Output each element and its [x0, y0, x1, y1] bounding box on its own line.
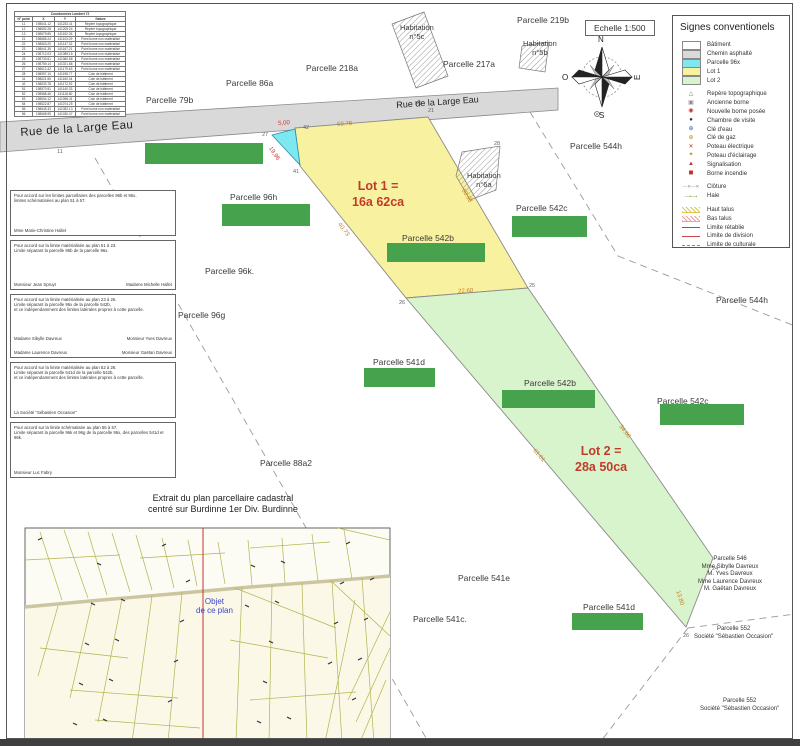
parcelle-218a: Parcelle 218a — [306, 63, 358, 73]
legend-label: Limite de culturale — [707, 242, 756, 248]
restored-limit-line — [682, 227, 700, 228]
coord-cell: 141096.41 — [54, 97, 76, 102]
coord-cell: 141233.41 — [54, 22, 76, 27]
boundary-dashed-544h-b — [618, 256, 795, 326]
coord-cell: 198759.14 — [33, 62, 55, 67]
coord-cell: 141052.13 — [54, 107, 76, 112]
coord-cell: 198712.03 — [33, 52, 55, 57]
legend-label: Lot 1 — [707, 69, 720, 75]
legend-item: Limite rétablie — [681, 223, 785, 232]
coordinate-table: Coordonnées Lambert 72 N° pointXYNature … — [14, 11, 126, 117]
parcelle-217a: Parcelle 217a — [443, 59, 495, 69]
accord-text-line: Limite séparant la parcelle 96k et 96g d… — [14, 430, 172, 440]
legend-item: ✕Poteau électrique — [681, 143, 785, 152]
coord-cell: 198622.87 — [33, 102, 55, 107]
parcelle-219b: Parcelle 219b — [517, 15, 569, 25]
legend-item: Bâtiment — [681, 41, 785, 50]
vertex-number: 25 — [529, 283, 535, 289]
accord-text-line: limites schématisées au plan 51 à 57. — [14, 198, 172, 203]
parcelle-541e: Parcelle 541e — [458, 573, 510, 583]
parcelle-542c-upper: Parcelle 542c — [516, 203, 568, 213]
parcelle-544h-right: Parcelle 544h — [716, 295, 768, 305]
upper-slope-icon — [682, 207, 700, 213]
coord-cell: Point borne non matérialisé — [76, 37, 126, 42]
coord-cell: Point borne non matérialisé — [76, 42, 126, 47]
signature-name: Monsieur Luc Fabry — [14, 470, 52, 475]
compass-north-label: N — [598, 35, 604, 44]
objet-plan-label: Objetde ce plan — [196, 597, 233, 615]
redaction-box — [364, 368, 435, 387]
parcelle-544h-upper: Parcelle 544h — [570, 141, 622, 151]
power-pole-icon: ✕ — [681, 144, 701, 151]
old-boundary-stone-icon: ▣ — [681, 100, 701, 107]
legend-label: Nouvelle borne posée — [707, 109, 765, 115]
fence-line-icon: —✕—✕ — [683, 184, 700, 190]
parcelle-542c-right: Parcelle 542c — [657, 396, 709, 406]
coord-col-header: N° point — [15, 17, 33, 22]
fire-hydrant-icon: ◼ — [689, 170, 694, 177]
coord-cell: 198652.28 — [33, 27, 55, 32]
coord-cell: 141205.24 — [54, 27, 76, 32]
vertex-number: 26 — [683, 633, 689, 639]
boundary-dashed-552 — [598, 628, 688, 745]
coord-cell: 198685.24 — [33, 37, 55, 42]
coord-cell: 198588.46 — [33, 92, 55, 97]
coord-cell: Point borne non matérialisé — [76, 62, 126, 67]
parcelle-541d-mid: Parcelle 541d — [373, 357, 425, 367]
redaction-box — [572, 613, 643, 630]
legend-label: Clôture — [707, 184, 726, 190]
signature-name: Mme Marie-Christine Hallet — [14, 228, 66, 233]
signage-icon: ▲ — [688, 161, 694, 168]
lot2-label: Lot 2 =28a 50ca — [575, 443, 627, 475]
building-swatch — [681, 41, 701, 50]
signature-name: La Société "Sébastien Occasion" — [14, 410, 77, 415]
hedge-line-icon: —•—• — [681, 194, 701, 199]
legend-label: Ancienne borne — [707, 100, 749, 106]
coord-cell: Point borne non matérialisé — [76, 52, 126, 57]
legend-item: ▣Ancienne borne — [681, 99, 785, 108]
fence-line-icon: —✕—✕ — [681, 184, 701, 190]
compass-west-label: O — [562, 73, 568, 82]
coord-cell: 141060.58 — [54, 57, 76, 62]
signature-name: Monsieur Yves Davreux — [127, 336, 172, 341]
compass-east-label: E — [633, 75, 642, 80]
legend-item: ◼Borne incendie — [681, 169, 785, 178]
manhole-icon: ● — [689, 117, 693, 124]
coord-cell: 141074.25 — [54, 102, 76, 107]
coord-cell: 141089.15 — [54, 52, 76, 57]
survey-marker-icon: △ — [681, 91, 701, 98]
coord-cell: Point borne non matérialisé — [76, 57, 126, 62]
legend-label: Chambre de visite — [707, 118, 755, 124]
measure-label: 59.78 — [337, 121, 352, 128]
lower-slope-icon — [681, 216, 701, 222]
vertex-number: 28 — [494, 141, 500, 147]
legend-label: Clé d'eau — [707, 127, 732, 133]
new-boundary-stone-icon: ◉ — [688, 108, 693, 115]
redaction-box — [145, 143, 263, 164]
legend-item: ●Chambre de visite — [681, 116, 785, 125]
street-light-icon: ✦ — [688, 152, 693, 159]
signature-name: Madame Michelle Hallet — [126, 282, 172, 287]
cultural-limit-line — [682, 245, 700, 246]
signature-name: Monsieur Gaëtan Davreux — [122, 350, 172, 355]
gas-valve-icon: ⊕ — [681, 135, 701, 142]
coord-cell: 141030.47 — [54, 112, 76, 117]
legend-item: Bas talus — [681, 214, 785, 223]
manhole-icon: ● — [681, 117, 701, 124]
inset-map — [25, 528, 390, 742]
parcelle-96k: Parcelle 96k. — [205, 266, 254, 276]
coord-cell: 198733.61 — [33, 57, 55, 62]
accord-text-line: et ce indépendamment des limites latéral… — [14, 375, 172, 380]
coord-cell: 141021.86 — [54, 62, 76, 67]
coord-cell: 198645.33 — [33, 107, 55, 112]
coord-cell: Point borne non matérialisé — [76, 67, 126, 72]
upper-slope-icon — [681, 207, 701, 213]
legend-label: Poteau d'éclairage — [707, 153, 757, 159]
parcelle-542b-lot2: Parcelle 542b — [524, 378, 576, 388]
signature-name: Madame Laurence Davreux — [14, 350, 67, 355]
building-swatch — [682, 41, 701, 50]
legend-label: Limite de division — [707, 233, 753, 239]
redaction-box — [502, 390, 595, 408]
redaction-box — [512, 216, 587, 237]
habitation-5b: Habitationn°5b — [523, 40, 557, 57]
parcelle-96h: Parcelle 96h — [230, 192, 277, 202]
legend-label: Repère topographique — [707, 91, 767, 97]
measure-label: 5,00 — [278, 120, 290, 127]
legend-label: Limite rétablie — [707, 225, 744, 231]
legend-item: Lot 1 — [681, 67, 785, 76]
vertex-number: 42 — [303, 125, 309, 131]
legend-label: Lot 2 — [707, 78, 720, 84]
parcelle-79b: Parcelle 79b — [146, 95, 193, 105]
parcelle-96g: Parcelle 96g — [178, 310, 225, 320]
coord-cell: 56 — [15, 112, 33, 117]
gas-valve-icon: ⊕ — [688, 135, 693, 142]
parcelle-546-owners: Parcelle 546Mme Sibylle DavreuxM. Yves D… — [698, 556, 762, 594]
coord-cell: 198679.89 — [33, 32, 55, 37]
parcelle-552-owner-1: Parcelle 552Société "Sébastien Occasion" — [694, 626, 773, 641]
legend-item: Limite de division — [681, 232, 785, 241]
coord-cell: 198604.12 — [33, 97, 55, 102]
legend-label: Bas talus — [707, 216, 732, 222]
accord-note: Pour accord sur la limite matérialisée a… — [10, 294, 176, 358]
redaction-box — [387, 243, 485, 262]
legend-item: ✦Poteau d'éclairage — [681, 152, 785, 161]
scan-edge-bar — [0, 739, 800, 746]
legend-label: Poteau électrique — [707, 144, 754, 150]
accord-note: Pour accord sur la limite schématisée au… — [10, 422, 176, 478]
coord-cell: 198612.42 — [33, 67, 55, 72]
vertex-number: 21 — [428, 108, 434, 114]
vertex-number: 41 — [293, 169, 299, 175]
legend-item: ▲Signalisation — [681, 160, 785, 169]
power-pole-icon: ✕ — [688, 144, 693, 151]
restored-limit-line — [681, 227, 701, 228]
legend-label: Haut talus — [707, 207, 734, 213]
road-swatch — [682, 50, 701, 59]
legend-item: △Repère topographique — [681, 90, 785, 99]
accord-note: Pour accord sur la limite matérialisée a… — [10, 240, 176, 290]
accord-note: Pour accord sur la limite matérialisée a… — [10, 362, 176, 418]
old-boundary-stone-icon: ▣ — [688, 100, 694, 107]
parcel96x-swatch — [681, 59, 701, 68]
coord-cell: 198641.35 — [33, 47, 55, 52]
habitation-5c: Habitationn°5c — [400, 24, 434, 41]
parcelle-541d-bottom: Parcelle 541d — [583, 602, 635, 612]
lot1-swatch — [681, 67, 701, 76]
parcel96x-swatch — [682, 59, 701, 68]
coord-cell: 198663.20 — [33, 42, 55, 47]
accord-text-line: et ce indépendamment des limites latéral… — [14, 307, 172, 312]
signage-icon: ▲ — [681, 161, 701, 168]
measure-label: 22.60 — [458, 288, 473, 295]
lower-slope-icon — [682, 216, 700, 222]
water-valve-icon: ⊕ — [688, 126, 693, 133]
parcelle-542b-lot1: Parcelle 542b — [402, 233, 454, 243]
legend-label: Chemin asphalté — [707, 51, 752, 57]
legend-item: ⊕Clé d'eau — [681, 125, 785, 134]
legend-title: Signes conventionels — [680, 22, 785, 33]
redaction-box — [660, 404, 744, 425]
parcelle-541c: Parcelle 541c. — [413, 614, 467, 624]
scale-indicator: Echelle 1:500 — [585, 20, 655, 36]
road-swatch — [681, 50, 701, 59]
parcelle-86a: Parcelle 86a — [226, 78, 273, 88]
new-boundary-stone-icon: ◉ — [681, 108, 701, 115]
extrait-caption: Extrait du plan parcellaire cadastralcen… — [148, 493, 298, 515]
accord-note: Pour accord sur les limites parcellaires… — [10, 190, 176, 236]
lot2-swatch — [682, 76, 701, 85]
coord-cell: 198570.91 — [33, 87, 55, 92]
coord-cell: Point borne non matérialisé — [76, 107, 126, 112]
legend-label: Signalisation — [707, 162, 741, 168]
legend-item: Lot 2 — [681, 76, 785, 85]
coord-cell: 198633.78 — [33, 82, 55, 87]
legend-label: Parcelle 96x — [707, 60, 740, 66]
coord-cell: Point borne non matérialisé — [76, 47, 126, 52]
legend-item: Haut talus — [681, 206, 785, 215]
vertex-number: 26 — [399, 300, 405, 306]
legend-label: Borne incendie — [707, 171, 747, 177]
hedge-line-icon: —•—• — [685, 194, 697, 199]
coord-cell: 198668.95 — [33, 112, 55, 117]
parcelle-88a2: Parcelle 88a2 — [260, 458, 312, 468]
lot2-swatch — [681, 76, 701, 85]
compass-south-label: S — [599, 111, 604, 120]
accord-text-line: Limite séparant la parcelle 96b de la pa… — [14, 248, 172, 253]
division-limit-line — [682, 236, 700, 237]
legend-item: —•—•Haie — [681, 192, 785, 201]
coord-cell: 198597.10 — [33, 72, 55, 77]
legend-label: Clé de gaz — [707, 135, 736, 141]
cadastral-plan-sheet: N S O E 59.785,0019,9640.7360.9322.6061.… — [0, 0, 800, 746]
lot2-area — [406, 288, 713, 627]
signature-name: Madame Sibylle Davreux — [14, 336, 62, 341]
division-limit-line — [681, 236, 701, 237]
legend-label: Bâtiment — [707, 42, 731, 48]
coord-cell: 198621.55 — [33, 77, 55, 82]
lot1-swatch — [682, 67, 701, 76]
legend-item: Chemin asphalté — [681, 50, 785, 59]
legend-item: ⊕Clé de gaz — [681, 134, 785, 143]
legend-item: Parcelle 96x — [681, 59, 785, 68]
legend: Signes conventionels BâtimentChemin asph… — [672, 15, 790, 248]
signature-name: Monsieur Jean Spruyt — [14, 282, 56, 287]
coord-cell: 198641.12 — [33, 22, 55, 27]
accord-notes-column: Pour accord sur les limites parcellaires… — [10, 190, 176, 482]
legend-item: —✕—✕Clôture — [681, 183, 785, 192]
vertex-number: 27 — [262, 132, 268, 138]
lot1-label: Lot 1 =16a 62ca — [352, 178, 404, 210]
parcelle-552-owner-2: Parcelle 552Société "Sébastien Occasion" — [700, 698, 779, 713]
survey-marker-icon: △ — [689, 91, 694, 98]
water-valve-icon: ⊕ — [681, 126, 701, 133]
compass-rose: N S O E — [562, 35, 642, 120]
habitation-6a: Habitationn°6a — [467, 172, 501, 189]
vertex-number: 11 — [57, 149, 63, 155]
street-light-icon: ✦ — [681, 152, 701, 159]
legend-item: ◉Nouvelle borne posée — [681, 108, 785, 117]
legend-label: Haie — [707, 193, 719, 199]
coord-row: 56198668.95141030.47Point borne non maté… — [15, 112, 126, 117]
cultural-limit-line — [681, 245, 701, 246]
redaction-box — [222, 204, 310, 226]
coord-cell: Point borne non matérialisé — [76, 112, 126, 117]
fire-hydrant-icon: ◼ — [681, 170, 701, 177]
legend-item: Limite de culturale — [681, 241, 785, 250]
